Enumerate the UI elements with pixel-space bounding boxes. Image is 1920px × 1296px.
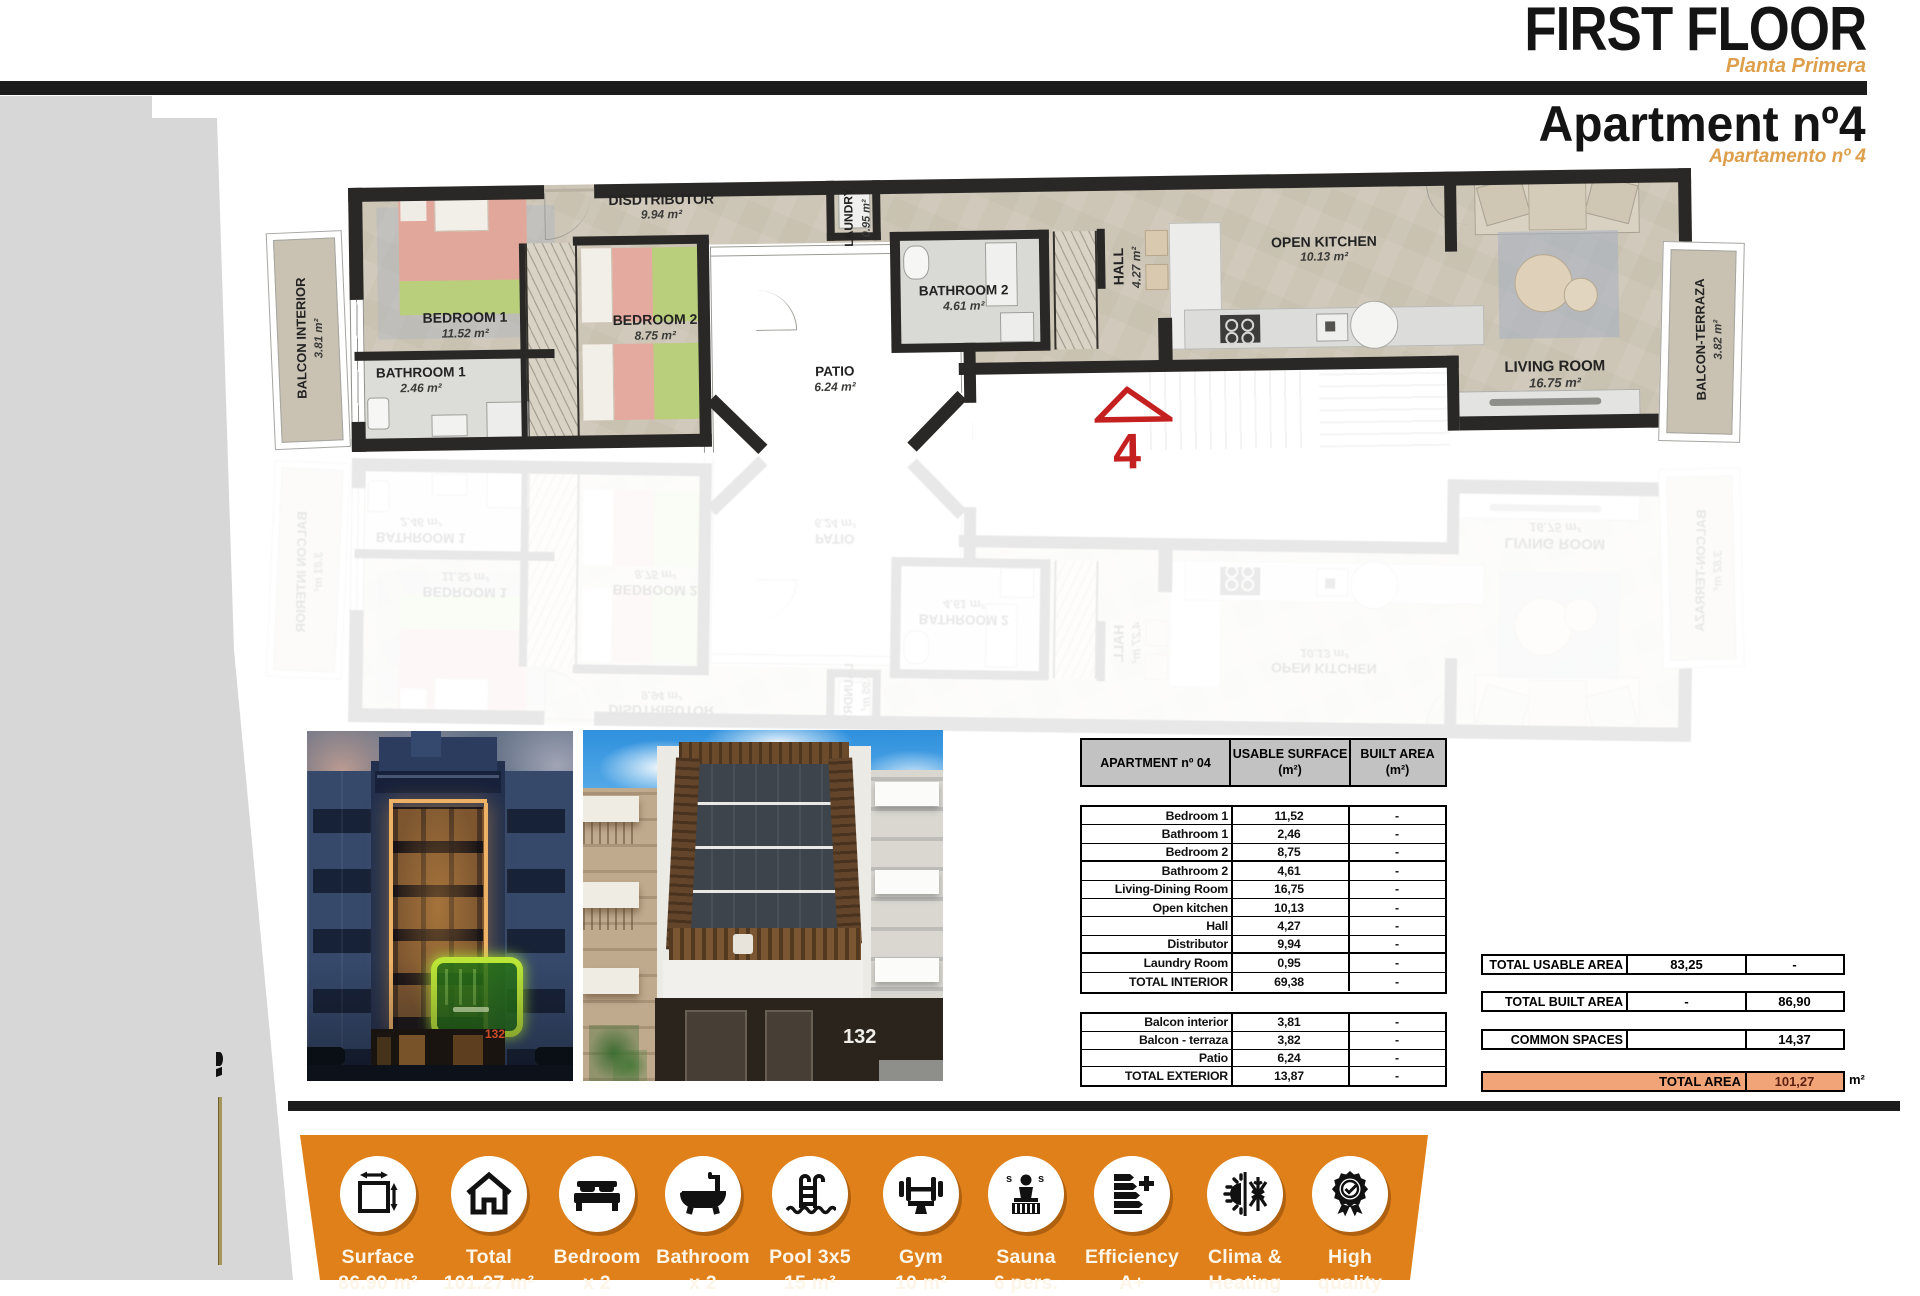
svg-text:s: s — [1038, 1173, 1044, 1185]
svg-text:s: s — [1006, 1173, 1012, 1185]
